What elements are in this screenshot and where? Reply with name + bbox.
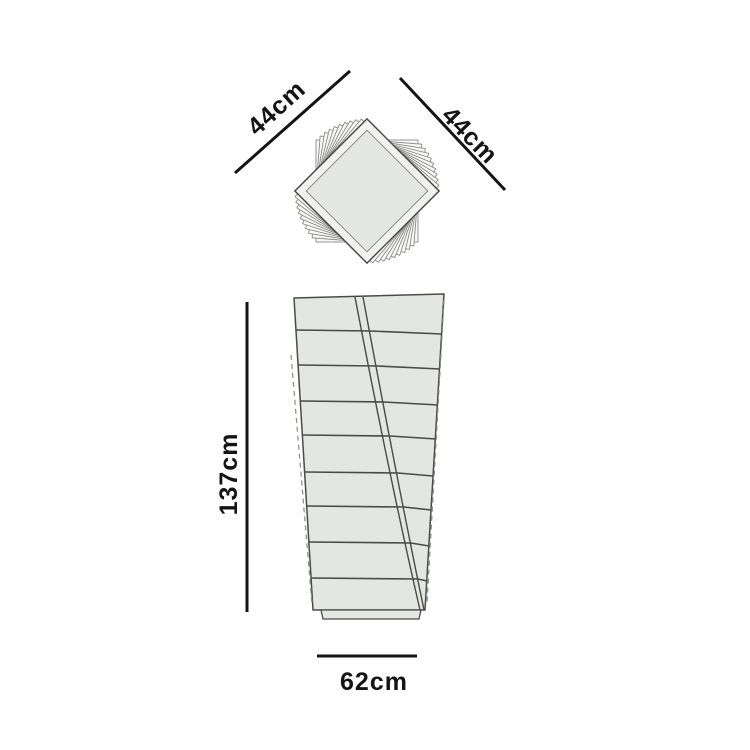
top-view	[295, 119, 439, 263]
dimension-label-top-left: 44cm	[242, 75, 311, 141]
dimension-label-top-right: 44cm	[436, 101, 503, 169]
dimension-label-width: 62cm	[340, 668, 408, 696]
dimension-diagram: 44cm 44cm	[0, 0, 750, 750]
front-view	[291, 294, 444, 619]
front-body	[294, 294, 444, 610]
base-plinth	[321, 610, 421, 619]
dimension-label-height: 137cm	[215, 433, 243, 516]
diagram-page: 44cm 44cm	[0, 0, 750, 750]
